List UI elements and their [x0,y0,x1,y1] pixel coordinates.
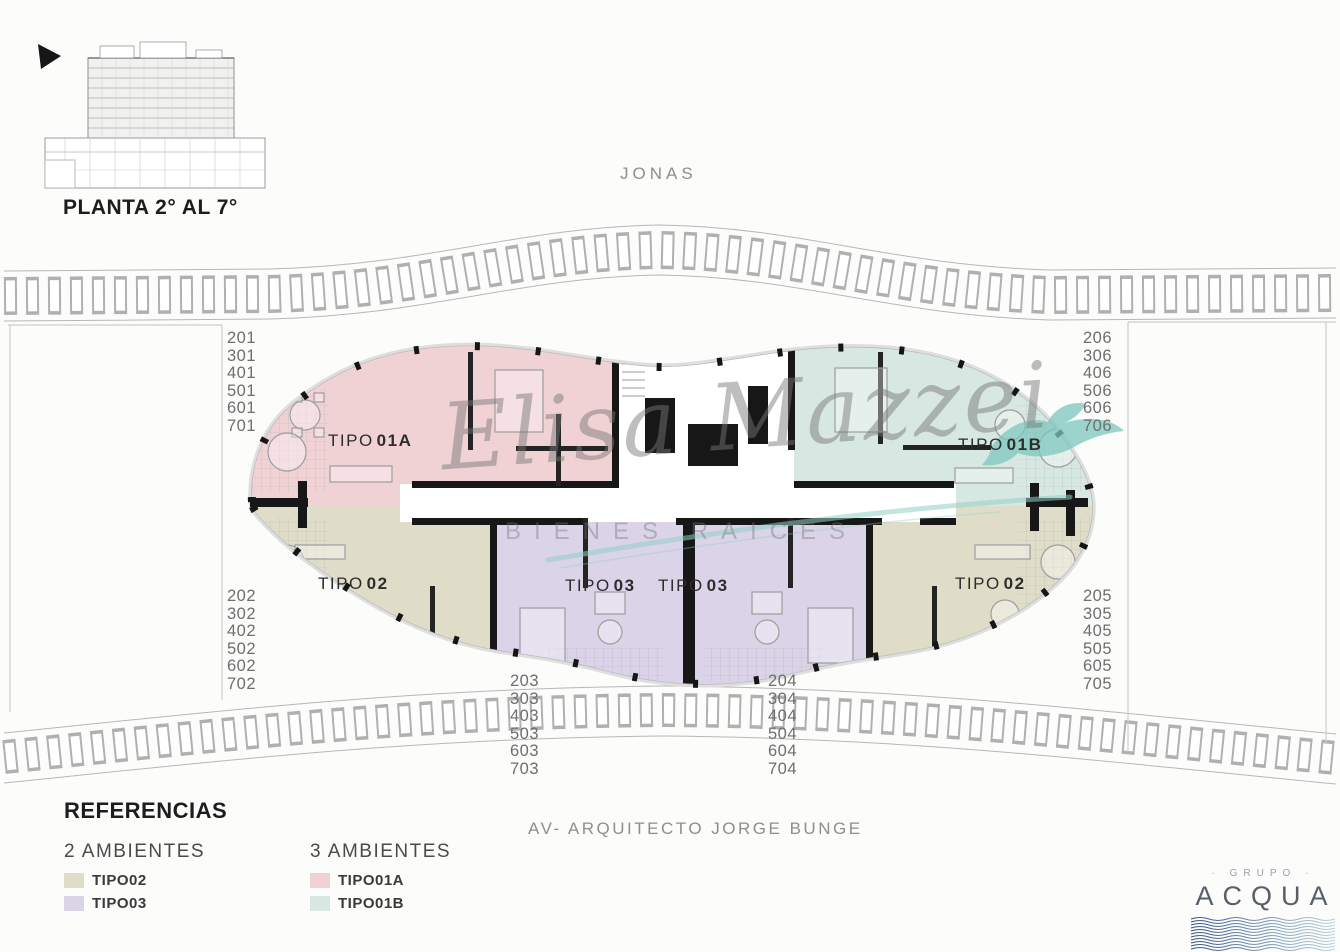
north-arrow-icon [38,44,61,69]
unit-numbers-left-top: 201301401501601701 [227,330,256,436]
unit-number: 405 [1083,623,1112,641]
legend-item-tipo03: TIPO03 [64,895,147,912]
logo-acqua-text: ACQUA [1191,881,1340,912]
unit-type-label-tipo03-right: TIPO03 [658,576,729,596]
legend-swatch-tipo03 [64,896,84,911]
unit-number: 304 [768,691,797,709]
unit-number: 603 [510,743,539,761]
legend-swatch-tipo02 [64,873,84,888]
unit-type-label-tipo02-right: TIPO02 [955,574,1026,594]
unit-number: 502 [227,641,256,659]
unit-type-label-tipo01a: TIPO01A [328,431,412,451]
unit-number: 205 [1083,588,1112,606]
unit-number: 406 [1083,365,1112,383]
unit-number: 606 [1083,400,1112,418]
unit-number: 504 [768,726,797,744]
unit-number: 302 [227,606,256,624]
unit-numbers-right-bottom: 205305405505605705 [1083,588,1112,694]
unit-number: 401 [227,365,256,383]
unit-type-label-tipo03-left: TIPO03 [565,576,636,596]
unit-numbers-right-top: 206306406506606706 [1083,330,1112,436]
unit-number: 306 [1083,348,1112,366]
plan-title: PLANTA 2° AL 7° [63,196,238,220]
legend-swatch-tipo01b [310,896,330,911]
legend-item-tipo01a: TIPO01A [310,872,404,889]
grupo-acqua-logo: · GRUPO · ACQUA [1185,868,1340,952]
unit-number: 503 [510,726,539,744]
unit-type-label-tipo01b: TIPO01B [958,435,1042,455]
unit-number: 305 [1083,606,1112,624]
legend-item-tipo01b: TIPO01B [310,895,404,912]
unit-number: 604 [768,743,797,761]
unit-number: 206 [1083,330,1112,348]
unit-number: 402 [227,623,256,641]
unit-number: 704 [768,761,797,779]
unit-number: 602 [227,658,256,676]
unit-number: 404 [768,708,797,726]
unit-number: 301 [227,348,256,366]
logo-grupo-text: · GRUPO · [1185,868,1340,879]
unit-number: 403 [510,708,539,726]
legend-item-tipo02: TIPO02 [64,872,147,889]
unit-number: 204 [768,673,797,691]
unit-number: 706 [1083,418,1112,436]
unit-number: 702 [227,676,256,694]
unit-number: 703 [510,761,539,779]
logo-waves-icon [1189,916,1337,952]
unit-number: 202 [227,588,256,606]
bottom-street-band [4,686,1336,784]
unit-numbers-bottom-left: 203303403503603703 [510,673,539,779]
street-label-bunge: AV- ARQUITECTO JORGE BUNGE [528,819,863,839]
unit-number: 505 [1083,641,1112,659]
watermark-subtitle-text: BIENES RAICES [505,518,858,546]
unit-number: 201 [227,330,256,348]
building-elevation-sketch [38,42,265,188]
unit-type-label-tipo02-left: TIPO02 [318,574,389,594]
unit-number: 705 [1083,676,1112,694]
unit-number: 701 [227,418,256,436]
legend-heading-2-ambientes: 2 AMBIENTES [64,841,205,863]
unit-number: 601 [227,400,256,418]
unit-number: 303 [510,691,539,709]
street-label-jonas: JONAS [620,164,697,184]
unit-number: 605 [1083,658,1112,676]
legend-swatch-tipo01a [310,873,330,888]
unit-number: 501 [227,383,256,401]
top-street-band [4,225,1336,321]
unit-numbers-left-bottom: 202302402502602702 [227,588,256,694]
legend-title: REFERENCIAS [64,798,227,824]
unit-number: 506 [1083,383,1112,401]
unit-numbers-bottom-right: 204304404504604704 [768,673,797,779]
unit-number: 203 [510,673,539,691]
legend-heading-3-ambientes: 3 AMBIENTES [310,841,451,863]
floor-plan-page: PLANTA 2° AL 7° JONAS AV- ARQUITECTO JOR… [0,0,1340,950]
